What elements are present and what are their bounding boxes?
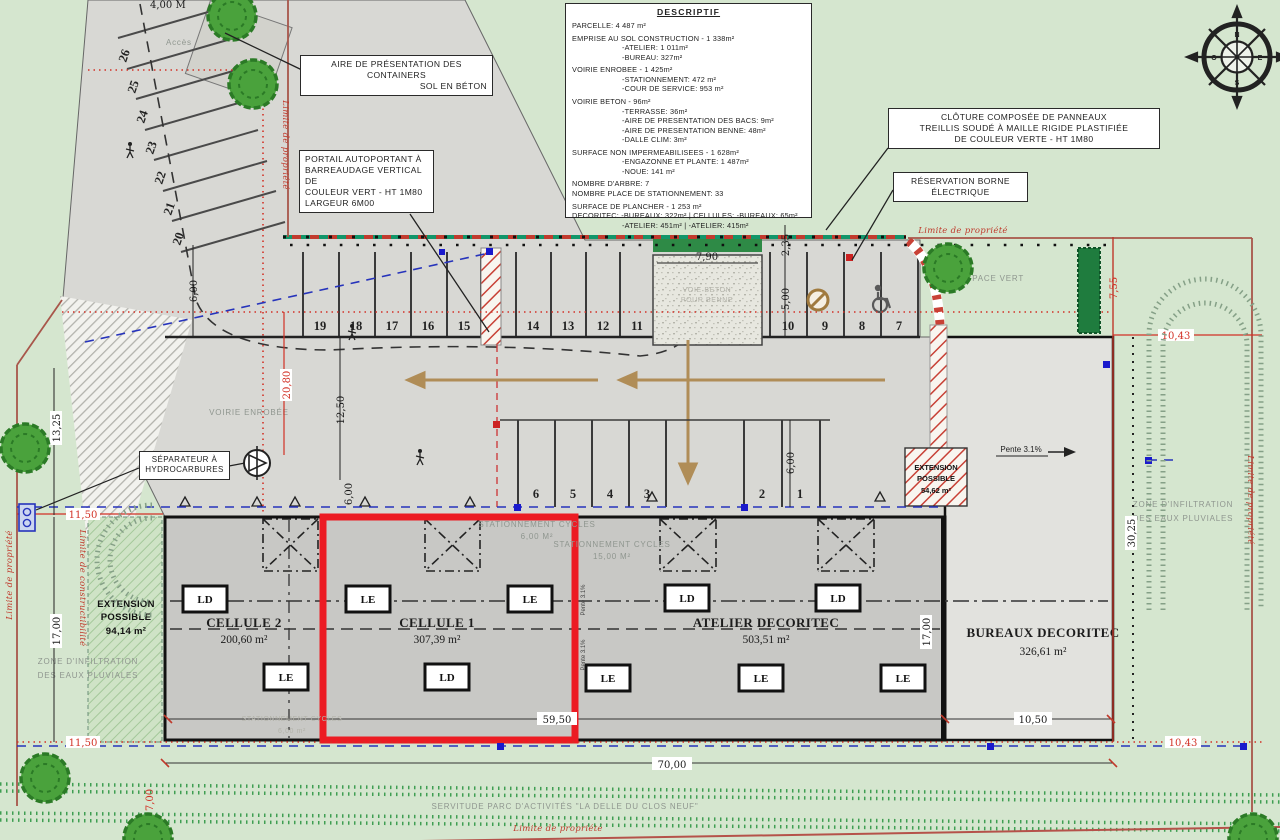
extension-right-area: 54,62 m²: [921, 486, 952, 495]
door-tag: LE: [896, 673, 911, 685]
cellule2-name: CELLULE 2: [206, 615, 281, 630]
dim: 10,43: [1162, 331, 1191, 342]
annotation-line: SÉPARATEUR À: [145, 455, 224, 465]
dim: 6,00: [189, 280, 200, 302]
parking-number: 12: [597, 319, 610, 333]
cycles-label: STATIONNEMENT CYCLES: [553, 540, 670, 549]
annotation-line: CLÔTURE COMPOSÉE DE PANNEAUX: [894, 112, 1154, 123]
parking-number: 10: [782, 319, 795, 333]
servitude-label: SERVITUDE PARC D'ACTIVITÉS "LA DELLE DU …: [432, 802, 699, 811]
descriptif-line: VOIRIE ENROBEE - 1 425m²: [572, 65, 805, 74]
descriptif-line: EMPRISE AU SOL CONSTRUCTION - 1 338m²: [572, 34, 805, 43]
annotation-line: HYDROCARBURES: [145, 465, 224, 475]
descriptif-line: SURFACE DE PLANCHER - 1 253 m²: [572, 202, 805, 211]
limite-propriete: Limite de propriété: [4, 530, 15, 620]
acces-label: Accès: [166, 38, 192, 47]
descriptif-line: -AIRE DE PRESENTATION BENNE: 48m²: [572, 126, 805, 135]
limite-propriete: Limite de propriété: [917, 225, 1007, 236]
annotation-line: PORTAIL AUTOPORTANT À: [305, 154, 428, 165]
annotation-line: SOL EN BÉTON: [306, 81, 487, 92]
door-tag: LD: [197, 594, 212, 606]
dim: 13,25: [52, 414, 63, 443]
descriptif-line: -TERRASSE: 36m²: [572, 107, 805, 116]
portail-gate-hatch: [481, 248, 501, 345]
voirie-label: VOIRIE ENROBÉE: [209, 408, 289, 417]
compass-e: E: [1258, 55, 1263, 62]
door-tag: LD: [679, 593, 694, 605]
descriptif-line: DECORITEC: -BUREAUX: 322m² | CELLULES: -…: [572, 211, 805, 220]
descriptif-line: -NOUE: 141 m²: [572, 167, 805, 176]
cycles-area: 6,00 M²: [521, 532, 554, 541]
annotation-containers: AIRE DE PRÉSENTATION DES CONTAINERS SOL …: [300, 55, 493, 96]
dim: 30,25: [1127, 519, 1138, 548]
parking-number: 7: [896, 319, 902, 333]
extension-left-label: POSSIBLE: [101, 612, 151, 623]
descriptif-line: VOIRIE BETON - 96m²: [572, 97, 805, 106]
descriptif-title: DESCRIPTIF: [572, 7, 805, 18]
extension-left: EXTENSION POSSIBLE 94,14 m²: [88, 517, 162, 742]
dim: 12,50: [336, 396, 347, 425]
dim: 5,00: [781, 288, 792, 310]
parking-number: 14: [527, 319, 540, 333]
parking-number: 1: [797, 487, 803, 501]
descriptif-line: -DALLE CLIM: 3m²: [572, 135, 805, 144]
extension-right: EXTENSION POSSIBLE 54,62 m²: [905, 448, 967, 506]
bureaux-building: [945, 337, 1113, 740]
extension-right-label: POSSIBLE: [917, 474, 955, 483]
no-entry-sign: [808, 290, 828, 310]
door-tag: LD: [439, 672, 454, 684]
annotation-line: LARGEUR 6M00: [305, 198, 428, 209]
parking-number: 8: [859, 319, 865, 333]
extension-right-label: EXTENSION: [914, 463, 957, 472]
parking-number: 16: [422, 319, 435, 333]
extension-left-area: 94,14 m²: [106, 626, 146, 637]
dim: 7,55: [1109, 277, 1120, 299]
door-tag: LE: [754, 673, 769, 685]
annotation-portail: PORTAIL AUTOPORTANT À BARREAUDAGE VERTIC…: [299, 150, 434, 213]
descriptif-line: -COUR DE SERVICE: 953 m²: [572, 84, 805, 93]
dim: 6,00: [786, 452, 797, 474]
annotation-line: ÉLECTRIQUE: [899, 187, 1022, 198]
cycles-label: STATIONNEMENT CYCLES: [478, 520, 595, 529]
benne-text: POUR BENNE: [681, 297, 733, 304]
dim: 10,43: [1169, 738, 1198, 749]
site-plan: 26 25 24 23 22 21 20 19 18 17 16 15 14 1…: [0, 0, 1280, 840]
atelier-area: 503,51 m²: [743, 634, 790, 646]
parking-number: 6: [533, 487, 539, 501]
descriptif-line: -ENGAZONNE ET PLANTE: 1 487m²: [572, 157, 805, 166]
parking-number: 9: [822, 319, 828, 333]
descriptif-line: -BUREAU: 327m²: [572, 53, 805, 62]
dim: 11,50: [69, 510, 98, 521]
descriptif-line: NOMBRE PLACE DE STATIONNEMENT: 33: [572, 189, 805, 198]
descriptif-line: -AIRE DE PRESENTATION DES BACS: 9m²: [572, 116, 805, 125]
door-tag: LE: [523, 594, 538, 606]
atelier-name: ATELIER DECORITEC: [693, 615, 839, 630]
dim: 17,00: [52, 617, 63, 646]
descriptif-line: -STATIONNEMENT: 472 m²: [572, 75, 805, 84]
descriptif-line: PARCELLE: 4 487 m²: [572, 21, 805, 30]
pente-label: Pente 3.1%: [1000, 445, 1041, 454]
benne-area: 7,90 VOIE BETON POUR BENNE: [653, 239, 762, 345]
door-tag: LD: [830, 593, 845, 605]
bureaux-name: BUREAUX DECORITEC: [966, 625, 1119, 640]
zone-infiltration-left: DES EAUX PLUVIALES: [38, 671, 139, 680]
cycles-area: 6,00 m²: [278, 728, 306, 735]
compass-o: O: [1211, 55, 1217, 62]
annotation-cloture: CLÔTURE COMPOSÉE DE PANNEAUX TREILLIS SO…: [888, 108, 1160, 149]
annotation-line: RÉSERVATION BORNE: [899, 176, 1022, 187]
cycles-label: STATIONNEMENT CYCLES: [242, 716, 343, 723]
zone-infiltration-left: ZONE D'INFILTRATION: [38, 657, 138, 666]
parking-number: 13: [562, 319, 575, 333]
dim: 4,00 M: [150, 0, 186, 11]
descriptif-line: NOMBRE D'ARBRE: 7: [572, 179, 805, 188]
parking-number: 2: [759, 487, 765, 501]
descriptif-box: DESCRIPTIF PARCELLE: 4 487 m² EMPRISE AU…: [565, 3, 812, 218]
annotation-line: TREILLIS SOUDÉ À MAILLE RIGIDE PLASTIFIÉ…: [894, 123, 1154, 134]
parking-number: 19: [314, 319, 327, 333]
cycles-area: 15,00 M²: [593, 552, 631, 561]
annotation-line: DE COULEUR VERTE - HT 1M80: [894, 134, 1154, 145]
cellule2-area: 200,60 m²: [221, 634, 268, 646]
annotation-line: BARREAUDAGE VERTICAL DE: [305, 165, 428, 187]
dim: 59,50: [543, 715, 572, 726]
dim: 2,35: [781, 234, 792, 256]
descriptif-line: SURFACE NON IMPERMEABILISEES - 1 628m²: [572, 148, 805, 157]
dim: 11,50: [69, 738, 98, 749]
annotation-separateur: SÉPARATEUR À HYDROCARBURES: [139, 451, 230, 480]
door-tag: LE: [279, 672, 294, 684]
parking-number: 3: [644, 487, 650, 501]
parking-number: 5: [570, 487, 576, 501]
cellule1-area: 307,39 m²: [414, 634, 461, 646]
bureaux-area: 326,61 m²: [1020, 646, 1067, 658]
compass-s: S: [1235, 80, 1240, 87]
annotation-line: COULEUR VERT - HT 1M80: [305, 187, 428, 198]
limite-propriete: Limite de propriété: [280, 99, 291, 189]
annotation-borne: RÉSERVATION BORNE ÉLECTRIQUE: [893, 172, 1028, 202]
limite-constructibilite: Limite de constructibilité: [77, 529, 88, 647]
parking-number: 17: [386, 319, 399, 333]
dim: 17,00: [922, 618, 933, 647]
dim: 6,00: [344, 483, 355, 505]
parking-number: 15: [458, 319, 471, 333]
descriptif-line: -ATELIER: 451m² | -ATELIER: 415m²: [572, 221, 805, 230]
pente-label-small: Pente 3.1%: [581, 584, 587, 616]
benne-text: VOIE BETON: [683, 287, 732, 294]
annotation-line: AIRE DE PRÉSENTATION DES CONTAINERS: [306, 59, 487, 81]
pente-label-small: Pente 3.1%: [581, 639, 587, 671]
hedge: [1078, 248, 1100, 333]
cellule1-name: CELLULE 1: [399, 615, 474, 630]
dim: 20,80: [282, 371, 293, 400]
descriptif-line: -ATELIER: 1 011m²: [572, 43, 805, 52]
compass-n: N: [1234, 32, 1239, 39]
red-marker: [493, 421, 500, 428]
parking-number: 11: [631, 319, 643, 333]
door-tag: LE: [361, 594, 376, 606]
door-tag: LE: [601, 673, 616, 685]
dim-7-90: 7,90: [696, 252, 718, 263]
parking-number: 4: [607, 487, 614, 501]
dim: 70,00: [658, 760, 687, 771]
extension-left-label: EXTENSION: [97, 599, 155, 610]
dim: 10,50: [1019, 715, 1048, 726]
